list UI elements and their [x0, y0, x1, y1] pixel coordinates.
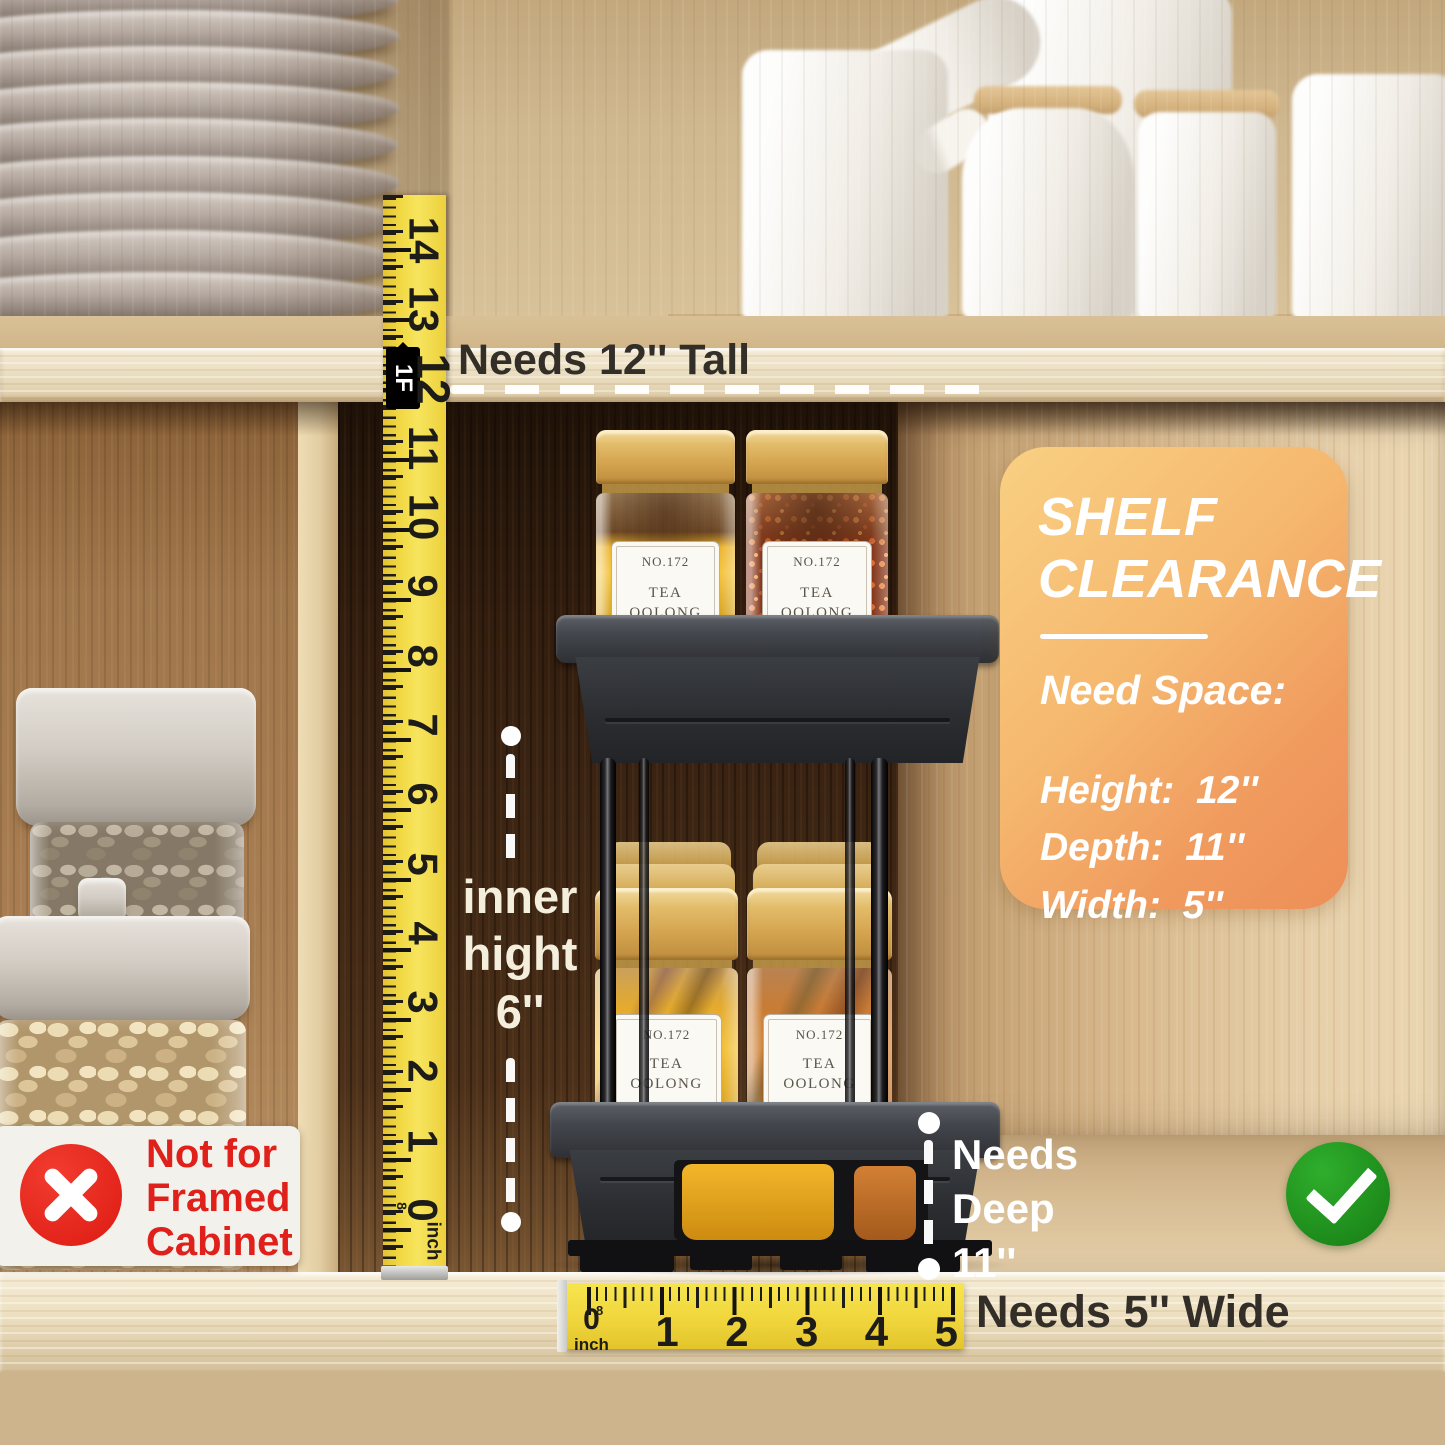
card-spec-depth: Depth: 11''	[1000, 819, 1348, 876]
vruler-number: 4	[399, 921, 447, 944]
vruler-number: 1	[399, 1129, 447, 1152]
white-jar-edge	[1292, 74, 1445, 320]
label-name-1: TEA	[612, 1055, 722, 1075]
white-teapot	[962, 108, 1134, 320]
basket-window	[674, 1160, 928, 1240]
check-icon	[1286, 1142, 1390, 1246]
nut-jar-top-lid	[16, 688, 256, 826]
white-pitcher	[988, 0, 1232, 320]
card-spec-height: Height: 12''	[1000, 762, 1348, 819]
rack-slide-foot	[780, 1254, 842, 1270]
teapot-wood-lid	[974, 86, 1122, 114]
label-name-2: OOLONG	[764, 1075, 875, 1095]
label-number: NO.172	[763, 554, 872, 570]
white-canister-right	[1138, 112, 1276, 320]
cross-icon	[20, 1144, 122, 1246]
hruler-number: 4	[865, 1311, 888, 1353]
spice-jar-top-left: NO.172 TEA OOLONG HERB	[596, 430, 735, 622]
rack-pole	[845, 758, 855, 1110]
jar-bottom-paprika	[854, 1166, 916, 1240]
product-scene: NO.172 TEA OOLONG HERB NO.172 TEA OOLONG…	[0, 0, 1445, 1445]
needs-deep-label: Needs Deep 11''	[952, 1128, 1078, 1289]
vruler-number-12: 12	[407, 353, 461, 404]
canister-wood-lid	[1134, 90, 1280, 118]
needs-tall-text: Needs 12'' Tall	[458, 336, 750, 385]
rack-pole	[871, 758, 888, 1110]
white-canister-left	[742, 50, 948, 320]
inner-height-dot-bottom	[501, 1212, 521, 1232]
shelf-clearance-card: SHELF CLEARANCE Need Space: Height: 12''…	[1000, 447, 1348, 909]
label-number: NO.172	[764, 1027, 875, 1043]
hruler-number-0: 0 inch	[574, 1305, 609, 1353]
vruler-number: 11	[399, 426, 447, 470]
rack-pole	[639, 758, 649, 1110]
hruler-number: 2	[725, 1311, 748, 1353]
vruler-number: 2	[399, 1060, 447, 1083]
vruler-number: 5	[399, 852, 447, 875]
rack-slide-foot	[866, 1252, 960, 1272]
vruler-fraction: 8	[394, 1202, 410, 1210]
label-number: NO.172	[612, 1027, 722, 1043]
vruler-number: 6	[399, 783, 447, 806]
label-name-1: TEA	[612, 584, 718, 604]
vruler-number: 8	[399, 644, 447, 667]
vertical-ruler: 14 13 1F 12 11 10 9 8 7 6 5 4 3 2 1 0 8 …	[383, 195, 446, 1266]
vertical-ruler-end-clip	[381, 1266, 448, 1280]
card-subtitle: Need Space:	[1000, 639, 1348, 714]
vruler-number: 3	[399, 990, 447, 1013]
upper-cabinet-interior	[0, 0, 1445, 322]
card-spec-width: Width: 5''	[1000, 877, 1348, 934]
jar-bottom-turmeric	[682, 1164, 834, 1240]
horizontal-ruler: 8 0 inch 1 2 3 4 5	[566, 1283, 964, 1349]
height-dashed-line	[450, 385, 982, 394]
floor	[0, 1372, 1445, 1445]
label-number: NO.172	[612, 554, 718, 570]
not-for-framed-text: Not for Framed Cabinet	[146, 1132, 293, 1264]
needs-deep-dot-bottom	[918, 1258, 940, 1280]
spice-jar-bottom-left: NO.172 TEA OOLONG HERB	[595, 888, 738, 1114]
needs-wide-text: Needs 5'' Wide	[976, 1286, 1290, 1338]
label-name-1: TEA	[763, 584, 872, 604]
rack-slide-foot	[580, 1252, 674, 1272]
vruler-unit: inch	[422, 1221, 444, 1260]
spice-jar-top-right: NO.172 TEA OOLONG HERB	[746, 430, 888, 622]
label-name-2: OOLONG	[612, 1075, 722, 1095]
vruler-number: 13	[399, 286, 447, 333]
inner-height-line-upper	[506, 754, 515, 862]
teapot-spout	[906, 100, 998, 181]
vruler-number: 10	[399, 494, 447, 541]
card-title-line2: CLEARANCE	[1038, 549, 1348, 611]
hruler-number: 3	[795, 1311, 818, 1353]
cabinet-divider-panel	[298, 402, 338, 1275]
nut-jar-bottom-lid	[0, 916, 250, 1020]
label-name-1: TEA	[764, 1055, 875, 1075]
vruler-number: 7	[399, 713, 447, 736]
vruler-number: 14	[399, 217, 447, 264]
inner-height-line-lower	[506, 1058, 515, 1208]
rack-slide-foot	[690, 1254, 752, 1270]
inner-height-dot-top	[501, 726, 521, 746]
white-roll	[833, 0, 1056, 152]
not-for-framed-card: Not for Framed Cabinet	[0, 1126, 300, 1266]
card-title-line1: SHELF	[1038, 487, 1348, 549]
hruler-unit: inch	[574, 1336, 609, 1353]
hruler-number: 5	[935, 1311, 958, 1353]
rack-top-basket	[562, 615, 993, 763]
vruler-number: 9	[399, 575, 447, 598]
inner-height-label: inner hight 6''	[440, 868, 600, 1040]
rack-pole	[600, 758, 616, 1110]
needs-deep-line	[924, 1140, 933, 1258]
needs-deep-dot-top	[918, 1112, 940, 1134]
hruler-number: 1	[655, 1311, 678, 1353]
